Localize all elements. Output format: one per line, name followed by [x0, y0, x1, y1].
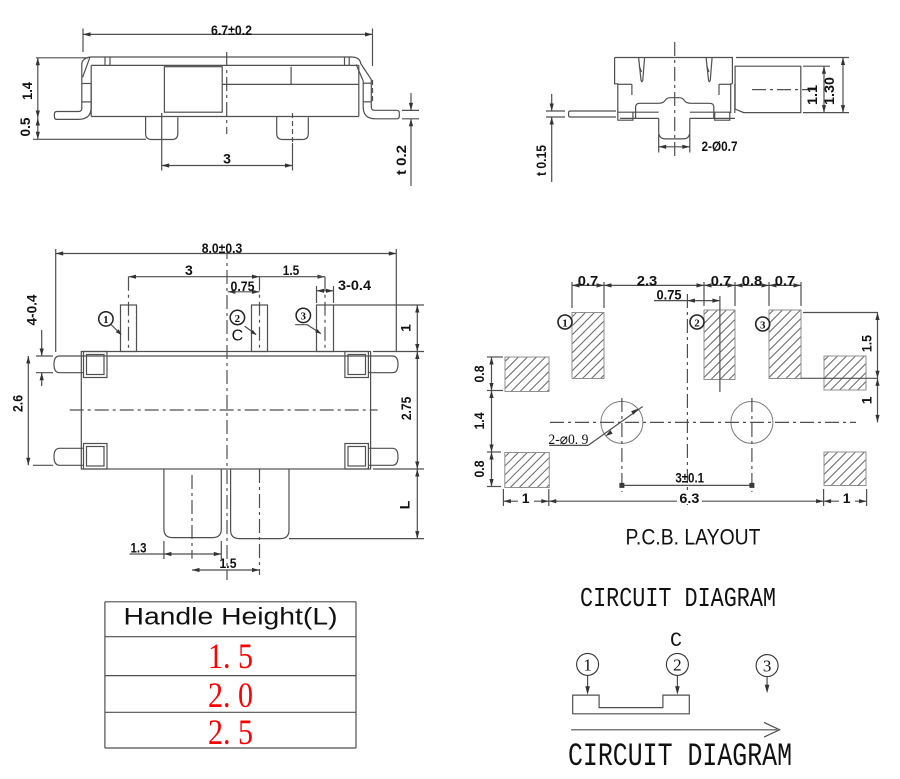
svg-text:1: 1 — [843, 490, 851, 506]
svg-text:4-0.4: 4-0.4 — [24, 294, 40, 325]
svg-text:0.75: 0.75 — [231, 278, 255, 294]
svg-text:3: 3 — [185, 262, 193, 278]
svg-text:1.4: 1.4 — [471, 412, 487, 429]
svg-text:CIRCUIT DIAGRAM: CIRCUIT DIAGRAM — [568, 738, 792, 775]
svg-text:1.30: 1.30 — [821, 77, 837, 105]
svg-text:1.3: 1.3 — [131, 540, 147, 556]
svg-text:2.75: 2.75 — [398, 396, 414, 420]
svg-text:3: 3 — [301, 311, 307, 323]
svg-text:3-0.4: 3-0.4 — [338, 277, 371, 293]
svg-text:1: 1 — [522, 490, 530, 506]
svg-text:2.3: 2.3 — [637, 273, 658, 289]
svg-text:6.7±0.2: 6.7±0.2 — [211, 22, 252, 38]
svg-text:0.7: 0.7 — [578, 273, 599, 289]
svg-text:6.3: 6.3 — [679, 490, 699, 506]
svg-text:1: 1 — [858, 396, 874, 404]
svg-text:P.C.B. LAYOUT: P.C.B. LAYOUT — [626, 524, 761, 549]
svg-text:0.8: 0.8 — [471, 460, 487, 477]
svg-text:1.1: 1.1 — [804, 85, 820, 105]
svg-text:1: 1 — [583, 655, 592, 674]
svg-text:C: C — [232, 328, 244, 345]
svg-text:1. 5: 1. 5 — [208, 636, 253, 676]
svg-text:2-Ø0.7: 2-Ø0.7 — [702, 138, 738, 154]
svg-text:3±0.1: 3±0.1 — [675, 470, 704, 486]
svg-text:L: L — [397, 500, 413, 509]
svg-text:t 0.2: t 0.2 — [393, 145, 409, 175]
svg-text:t 0.15: t 0.15 — [533, 145, 549, 176]
svg-text:1: 1 — [398, 324, 414, 332]
svg-text:0.7: 0.7 — [711, 273, 732, 289]
svg-text:0.8: 0.8 — [742, 273, 763, 289]
svg-text:1.5: 1.5 — [283, 262, 300, 278]
svg-text:CIRCUIT DIAGRAM: CIRCUIT DIAGRAM — [580, 585, 776, 615]
svg-text:2: 2 — [235, 313, 241, 325]
svg-text:2-⌀0. 9: 2-⌀0. 9 — [548, 432, 588, 448]
svg-text:1: 1 — [103, 314, 109, 326]
svg-text:1.5: 1.5 — [220, 555, 237, 571]
svg-text:Handle Height(L): Handle Height(L) — [124, 604, 338, 631]
svg-text:0.7: 0.7 — [775, 273, 796, 289]
svg-text:1.4: 1.4 — [19, 82, 35, 100]
svg-text:1.5: 1.5 — [858, 335, 874, 352]
svg-text:2. 5: 2. 5 — [208, 712, 253, 752]
svg-text:2. 0: 2. 0 — [208, 675, 253, 715]
svg-text:8.0±0.3: 8.0±0.3 — [202, 240, 243, 256]
svg-text:1: 1 — [562, 317, 568, 329]
svg-text:2: 2 — [673, 655, 682, 674]
svg-text:2.6: 2.6 — [10, 395, 26, 412]
svg-text:0.8: 0.8 — [471, 365, 487, 382]
svg-text:3: 3 — [763, 657, 772, 676]
svg-text:2: 2 — [694, 317, 700, 329]
svg-text:C: C — [670, 630, 682, 653]
svg-text:3: 3 — [760, 319, 766, 331]
svg-text:0.5: 0.5 — [17, 117, 33, 136]
svg-text:3: 3 — [223, 151, 231, 167]
svg-text:0.75: 0.75 — [657, 287, 682, 303]
